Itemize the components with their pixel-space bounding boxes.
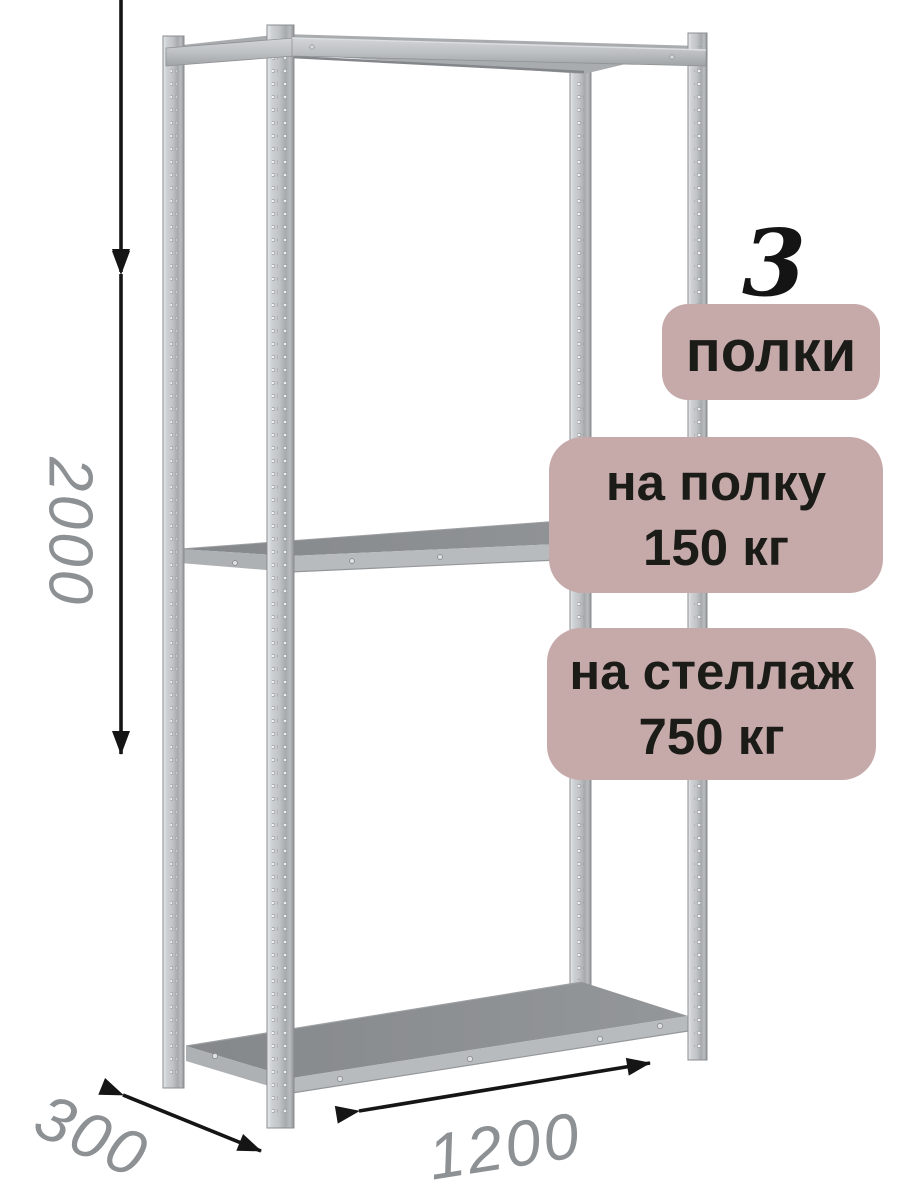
shelf-load-line1: на полку [606, 450, 826, 515]
post-front-left [267, 25, 294, 1128]
shelf-count-badge-label: полки [686, 315, 857, 389]
shelving-rack-render: 2000 300 1200 [0, 0, 900, 1200]
rack-load-badge: на стеллаж 750 кг [547, 628, 876, 780]
bottom-shelf [186, 982, 688, 1093]
shelf-count-badge: полки [662, 304, 880, 400]
shelf-count-number: 3 [722, 208, 826, 318]
shelf-load-line2: 150 кг [643, 515, 789, 580]
post-back-left [163, 36, 184, 1088]
width-dimension-label: 1200 [423, 1098, 587, 1193]
depth-dimension-label: 300 [24, 1080, 159, 1193]
rack-load-line2: 750 кг [638, 704, 784, 769]
height-dimension-label: 2000 [36, 456, 105, 607]
product-image: 2000 300 1200 3 полки на полку 150 кг на… [0, 0, 900, 1200]
rack-load-line1: на стеллаж [569, 639, 853, 704]
shelf-load-badge: на полку 150 кг [549, 437, 883, 593]
